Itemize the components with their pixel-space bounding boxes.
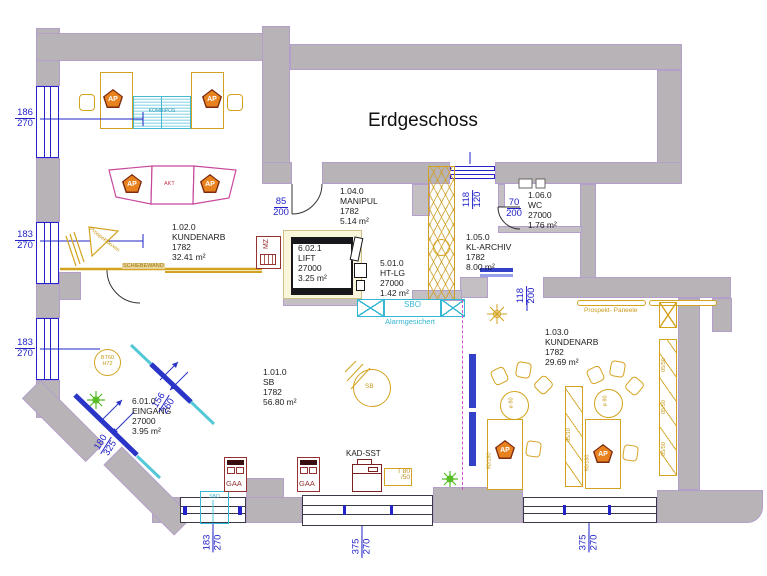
room-id: 1.05.0 bbox=[466, 232, 511, 242]
chair bbox=[227, 94, 243, 111]
room-label-manipul: 1.04.0 MANIPUL 1782 5.14 m² bbox=[340, 186, 378, 226]
room-name: LIFT bbox=[298, 253, 327, 263]
shelf-dim: 05/50 bbox=[661, 400, 667, 414]
wall-segment bbox=[580, 184, 596, 284]
chair bbox=[489, 366, 509, 387]
dim-window-183-270: 183 270 bbox=[8, 230, 42, 251]
dim-den: 270 bbox=[8, 349, 42, 359]
ap-marker: AP bbox=[200, 174, 220, 193]
room-code: 1782 bbox=[263, 387, 297, 397]
room-code: 1782 bbox=[466, 252, 511, 262]
kombipos-label: KOMBIPOS bbox=[142, 108, 182, 114]
window bbox=[302, 495, 433, 526]
shelf-dim: 05/10 bbox=[566, 428, 572, 442]
window-tick bbox=[390, 505, 393, 515]
window-tick bbox=[608, 505, 611, 515]
sbo-xbox bbox=[357, 299, 384, 317]
room-id: 1.03.0 bbox=[545, 327, 598, 337]
chair bbox=[525, 440, 542, 458]
dim-den: 270 bbox=[589, 532, 599, 552]
sb-terminal-label: SB bbox=[365, 384, 374, 390]
wall-segment bbox=[36, 158, 60, 222]
room-code: 27000 bbox=[380, 278, 409, 288]
dim-door-85-200: 85 200 bbox=[264, 197, 298, 218]
room-name: SB bbox=[263, 377, 297, 387]
plan-title: Erdgeschoss bbox=[368, 110, 478, 132]
sbo-window-label: SBO bbox=[204, 494, 225, 500]
t80-line2: /50 bbox=[386, 475, 410, 481]
room-label-kundenarb-1: 1.02.0 KUNDENARB 1782 32.41 m² bbox=[172, 222, 225, 262]
room-code: 1782 bbox=[340, 206, 378, 216]
wall-segment bbox=[246, 478, 284, 498]
room-code: 1782 bbox=[172, 242, 225, 252]
dim-den: 200 bbox=[264, 208, 298, 218]
chair bbox=[585, 365, 605, 386]
dim-den: 270 bbox=[8, 241, 42, 251]
room-area: 29.69 m² bbox=[545, 357, 598, 367]
room-name: WC bbox=[528, 200, 557, 210]
glass-door-panel bbox=[469, 354, 476, 408]
t80-label: T 80 /50 bbox=[386, 469, 410, 481]
wall-segment bbox=[246, 497, 302, 523]
chair bbox=[515, 361, 533, 379]
room-area: 32.41 m² bbox=[172, 252, 225, 262]
window-tick bbox=[563, 505, 566, 515]
chair bbox=[79, 94, 95, 111]
prospekt-panel bbox=[577, 300, 646, 306]
lift-rail bbox=[293, 288, 351, 293]
dim-den: 120 bbox=[474, 189, 484, 208]
wall-segment bbox=[657, 490, 763, 523]
wall-segment bbox=[543, 277, 731, 298]
kad-sst-label: KAD-SST bbox=[346, 449, 381, 459]
room-label-lift: 6.02.1 LIFT 27000 3.25 m² bbox=[298, 243, 327, 283]
room-id: 6.02.1 bbox=[298, 243, 327, 253]
room-code: 27000 bbox=[528, 210, 557, 220]
gaa-label: GAA bbox=[299, 481, 315, 487]
room-code: 1782 bbox=[545, 347, 598, 357]
ap-marker: AP bbox=[202, 89, 222, 108]
glass-door-panel bbox=[469, 412, 476, 466]
room-area: 5.14 m² bbox=[340, 216, 378, 226]
shelf-dim: 05/50 bbox=[661, 442, 667, 456]
room-name: HT-LG bbox=[380, 268, 409, 278]
ap-marker: AP bbox=[122, 174, 142, 193]
room-id: 1.06.0 bbox=[528, 190, 557, 200]
dim-window-375-270: 375 270 bbox=[345, 528, 379, 564]
dim-den: 270 bbox=[8, 119, 42, 129]
ap-label: AP bbox=[495, 440, 515, 459]
gaa-label: GAA bbox=[226, 481, 242, 487]
ap-label: AP bbox=[202, 89, 222, 108]
round-table-dim: ø 80 bbox=[509, 397, 515, 408]
room-area: 56.80 m² bbox=[263, 397, 297, 407]
desk-dim: 90/180 bbox=[584, 455, 590, 472]
room-area: 3.25 m² bbox=[298, 273, 327, 283]
room-label-klarchiv: 1.05.0 KL-ARCHIV 1782 8.00 m² bbox=[466, 232, 511, 272]
akt-label: AKT bbox=[164, 181, 175, 187]
shelf-dim: 05/50 bbox=[661, 358, 667, 372]
chair bbox=[533, 374, 555, 396]
chair bbox=[622, 444, 639, 462]
dim-door-180-325: 180 325 bbox=[88, 424, 124, 466]
chair bbox=[609, 360, 627, 378]
sliding-door bbox=[480, 274, 513, 277]
bt60-line2: H72 bbox=[96, 361, 119, 367]
window-corridor bbox=[450, 166, 495, 171]
room-name: KL-ARCHIV bbox=[466, 242, 511, 252]
prospektboxen-label: Prospektboxen bbox=[88, 226, 121, 253]
wall-segment bbox=[59, 272, 81, 300]
wall-segment bbox=[678, 298, 700, 490]
room-code: 27000 bbox=[298, 263, 327, 273]
ap-label: AP bbox=[200, 174, 220, 193]
wall-segment bbox=[262, 162, 292, 184]
wall-segment bbox=[36, 33, 264, 61]
ap-marker: AP bbox=[495, 440, 515, 459]
chair bbox=[624, 375, 646, 397]
wall-segment bbox=[290, 44, 682, 70]
room-area: 3.95 m² bbox=[132, 426, 171, 436]
kad-printer bbox=[352, 464, 382, 492]
room-boundary-dashed bbox=[462, 300, 463, 490]
ap-label: AP bbox=[122, 174, 142, 193]
dim-den: 270 bbox=[213, 532, 223, 552]
dim-window-186-270: 186 270 bbox=[8, 108, 42, 129]
window-corridor bbox=[450, 174, 495, 179]
room-id: 1.02.0 bbox=[172, 222, 225, 232]
shelf-box bbox=[659, 302, 677, 328]
round-table-dim: ø 80 bbox=[603, 395, 609, 406]
dim-den: 200 bbox=[497, 209, 531, 219]
schiebewand-label: SCHIEBEWAND bbox=[122, 263, 165, 269]
ht-equipment bbox=[354, 263, 367, 278]
floor-plan: AP AP AP AP AP AP Erdgeschoss 1.02.0 KUN… bbox=[0, 0, 767, 576]
prospekt-paneele-label: Prospekt- Paneele bbox=[584, 308, 637, 314]
ap-marker: AP bbox=[593, 444, 613, 463]
wall-segment bbox=[433, 487, 523, 523]
room-id: 5.01.0 bbox=[380, 258, 409, 268]
room-id: 1.01.0 bbox=[263, 367, 297, 377]
bt60-label: BT60 H72 bbox=[96, 355, 119, 367]
desk-dim: 90/180 bbox=[486, 453, 492, 470]
dim-window-118-120: 118 120 bbox=[458, 182, 488, 216]
dim-door-70-200: 70 200 bbox=[497, 198, 531, 219]
ap-label: AP bbox=[593, 444, 613, 463]
window-tick bbox=[343, 505, 346, 515]
ht-equipment bbox=[356, 280, 365, 291]
room-name: KUNDENARB bbox=[545, 337, 598, 347]
ap-marker: AP bbox=[103, 89, 123, 108]
room-label-wc: 1.06.0 WC 27000 1.76 m² bbox=[528, 190, 557, 230]
wall-segment bbox=[262, 26, 290, 176]
room-area: 1.42 m² bbox=[380, 288, 409, 298]
room-name: KUNDENARB bbox=[172, 232, 225, 242]
room-label-sb: 1.01.0 SB 1782 56.80 m² bbox=[263, 367, 297, 407]
room-name: MANIPUL bbox=[340, 196, 378, 206]
window-tick bbox=[183, 506, 187, 515]
window-tick bbox=[238, 506, 242, 515]
dim-window-183-270: 183 270 bbox=[8, 338, 42, 359]
partition-wall bbox=[283, 298, 358, 306]
room-label-htlg: 5.01.0 HT-LG 27000 1.42 m² bbox=[380, 258, 409, 298]
dim-door-118-200: 118 200 bbox=[512, 278, 542, 312]
archive-circle bbox=[433, 239, 450, 256]
room-id: 1.04.0 bbox=[340, 186, 378, 196]
room-area: 8.00 m² bbox=[466, 262, 511, 272]
room-label-kundenarb-2: 1.03.0 KUNDENARB 1782 29.69 m² bbox=[545, 327, 598, 367]
wall-segment bbox=[495, 162, 682, 184]
room-area: 1.76 m² bbox=[528, 220, 557, 230]
dim-window-375-270: 375 270 bbox=[572, 524, 606, 560]
mz-label: MZ bbox=[264, 239, 270, 249]
window bbox=[523, 497, 657, 523]
wall-segment bbox=[36, 284, 60, 318]
alarm-label: Alarmgesichert bbox=[368, 319, 452, 325]
sbo-case-label: SBO bbox=[384, 302, 441, 308]
archive-shaft bbox=[428, 166, 455, 300]
dim-den: 200 bbox=[528, 285, 538, 304]
partition-wall bbox=[460, 277, 488, 298]
ap-label: AP bbox=[103, 89, 123, 108]
wall-segment bbox=[657, 70, 682, 164]
dim-door-156-260: 156 260 bbox=[146, 382, 182, 424]
dim-window-183-270: 183 270 bbox=[196, 524, 230, 560]
dim-den: 270 bbox=[362, 536, 372, 556]
